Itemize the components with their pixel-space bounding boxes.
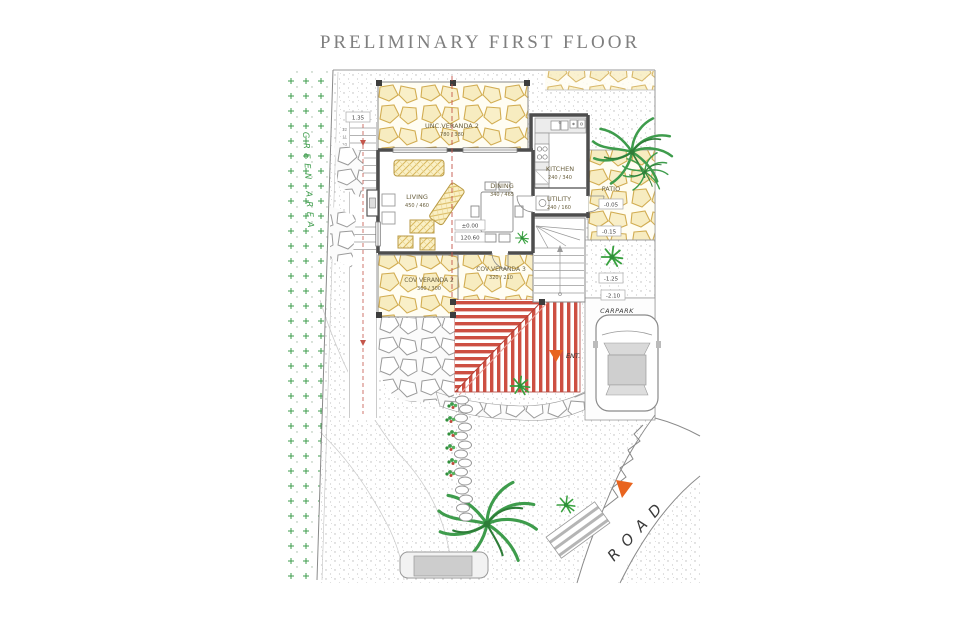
dims-kitchen: 240 / 340 — [548, 175, 572, 181]
dims-cov-veranda-3: 320 / 210 — [489, 275, 513, 281]
dims-utility: 240 / 160 — [547, 205, 571, 211]
label-cov-veranda-3: COV VERANDA 3 — [476, 266, 526, 273]
svg-text:-0.05: -0.05 — [604, 203, 619, 209]
label-living: LIVING — [406, 193, 428, 201]
label-dining: DINING — [490, 182, 514, 190]
car — [593, 315, 661, 411]
svg-text:-2.10: -2.10 — [606, 294, 621, 300]
badge-carpark-level: -2.10 — [601, 290, 625, 300]
badge-floor-level: ±0.00 — [455, 220, 485, 230]
label-carpark: CARPARK — [600, 307, 634, 315]
svg-text:±0.00: ±0.00 — [462, 224, 479, 230]
dims-dining: 340 / 465 — [490, 192, 514, 198]
label-cov-veranda-2: COV VERANDA 2 — [404, 277, 454, 284]
label-utility: UTILITY — [547, 195, 571, 203]
svg-text:1.35: 1.35 — [352, 116, 365, 122]
east-stair-outline — [533, 218, 585, 302]
badge-garden-lower: -1.25 — [599, 273, 623, 283]
svg-text:11: 11 — [342, 135, 347, 140]
dims-unc-veranda-2: 780 / 380 — [440, 132, 464, 138]
road-direction-marker — [616, 480, 633, 498]
label-unc-veranda-2: UNC.VERANDA 2 — [425, 122, 479, 130]
badge-floor-abs: 120.60 — [455, 232, 485, 242]
badge-garden-upper: -0.15 — [597, 226, 621, 236]
badge-patio-level: -0.05 — [599, 199, 623, 209]
carpark — [585, 298, 661, 420]
dims-cov-veranda-2: 360 / 300 — [417, 286, 441, 292]
entrance-roof — [455, 300, 580, 395]
badge-terrace: 1.35 — [346, 112, 370, 122]
dims-living: 450 / 460 — [405, 203, 429, 209]
label-kitchen: KITCHEN — [546, 165, 574, 173]
svg-text:12: 12 — [342, 127, 348, 132]
site-plan-svg: GREEN AREA 1211 1009 0807 0302 01 — [0, 0, 960, 620]
svg-text:-1.25: -1.25 — [604, 277, 619, 283]
entrance-label: ENT. — [566, 352, 580, 360]
parked-car-bottom — [400, 552, 488, 578]
floor-plan-page: GREEN AREA 1211 1009 0807 0302 01 — [0, 0, 960, 620]
label-patio: PATIO — [602, 185, 620, 193]
svg-text:-0.15: -0.15 — [602, 230, 617, 236]
fireplace — [367, 190, 378, 216]
paving-left — [378, 318, 456, 402]
unc-veranda-2-area — [378, 82, 528, 150]
svg-text:120.60: 120.60 — [460, 236, 480, 242]
page-title: PRELIMINARY FIRST FLOOR — [320, 32, 640, 53]
